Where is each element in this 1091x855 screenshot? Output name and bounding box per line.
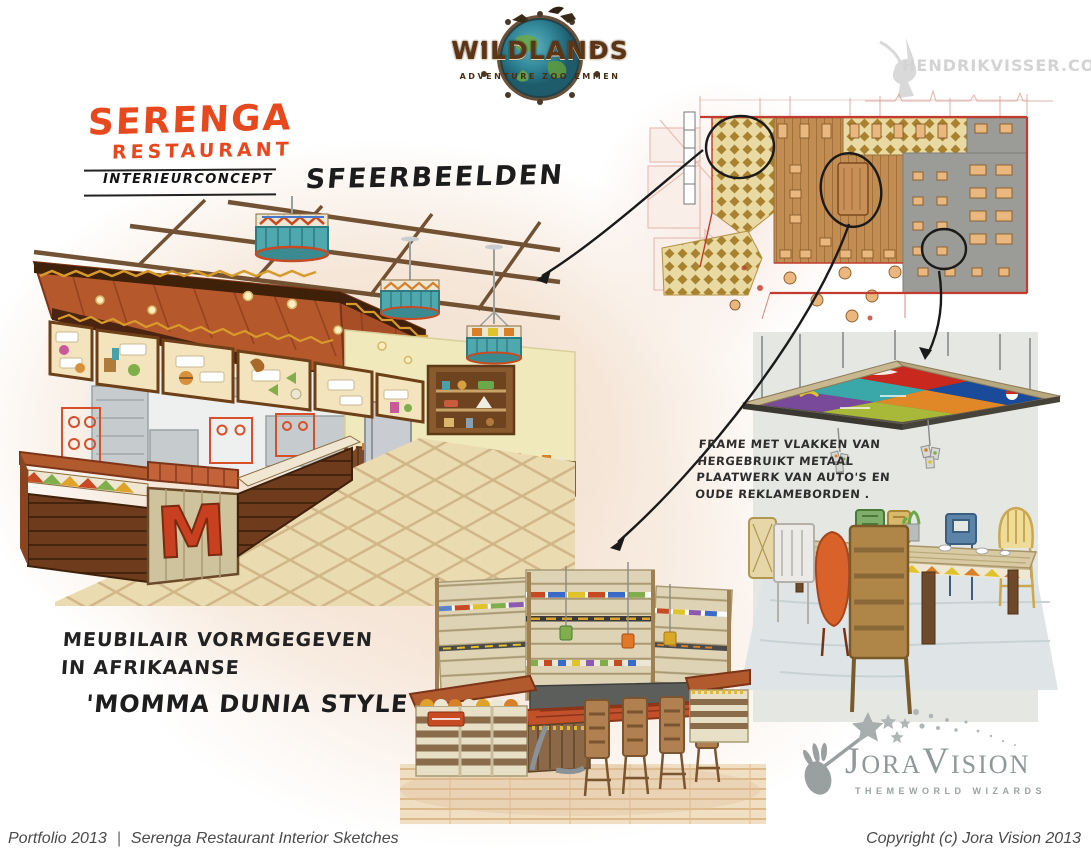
frame-annotation: FRAME MET VLAKKEN VAN HERGEBRUIKT METAAL… (695, 436, 893, 502)
furniture-annotation-line: MEUBILAIR VORMGEGEVEN (62, 626, 374, 654)
joravision-tagline: THEMEWORLD WIZARDS (855, 786, 1046, 796)
counter-monogram: M (155, 489, 229, 575)
furniture-annotation: MEUBILAIR VORMGEGEVEN IN AFRIKAANSE (60, 626, 374, 682)
drum-lamp (381, 280, 439, 319)
furniture-style-annotation: 'MOMMA DUNIA STYLE (85, 690, 410, 718)
frame-annotation-line: PLAATWERK VAN AUTO'S EN (696, 469, 891, 486)
table-chairs-sketch (740, 508, 1058, 714)
page-title: SFEERBEELDEN (304, 160, 565, 195)
footer-copyright: Copyright (c) Jora Vision 2013 (866, 830, 1081, 848)
furniture-annotation-line: IN AFRIKAANSE (60, 654, 372, 682)
footer-separator: | (117, 830, 121, 848)
main-interior-sketch: M (20, 196, 575, 606)
watermark-text: HENDRIKVISSER.COM (902, 56, 1091, 75)
frame-annotation-line: HERGEBRUIKT METAAL (697, 453, 892, 470)
footer-left: Portfolio 2013 | Serenga Restaurant Inte… (8, 830, 399, 848)
wildlands-logo-text: WILDLANDS (448, 36, 632, 65)
frame-annotation-line: FRAME MET VLAKKEN VAN (698, 436, 893, 453)
drum-lamp (256, 214, 328, 261)
wildlands-tagline: ADVENTURE ZOO EMMEN (448, 72, 632, 81)
brand-title: SERENGA (87, 97, 293, 143)
footer-portfolio: Portfolio 2013 (8, 830, 107, 848)
frame-annotation-line: OUDE REKLAMEBORDEN . (695, 486, 890, 503)
portfolio-page: M (0, 0, 1091, 855)
bar-sketch (400, 562, 766, 824)
brand-subtitle: RESTAURANT (112, 138, 293, 163)
footer-title: Serenga Restaurant Interior Sketches (131, 830, 399, 848)
joravision-logo-text: JoraVision (845, 740, 1030, 783)
concept-label: INTERIEURCONCEPT (103, 172, 273, 187)
floor-plan (648, 94, 1027, 322)
